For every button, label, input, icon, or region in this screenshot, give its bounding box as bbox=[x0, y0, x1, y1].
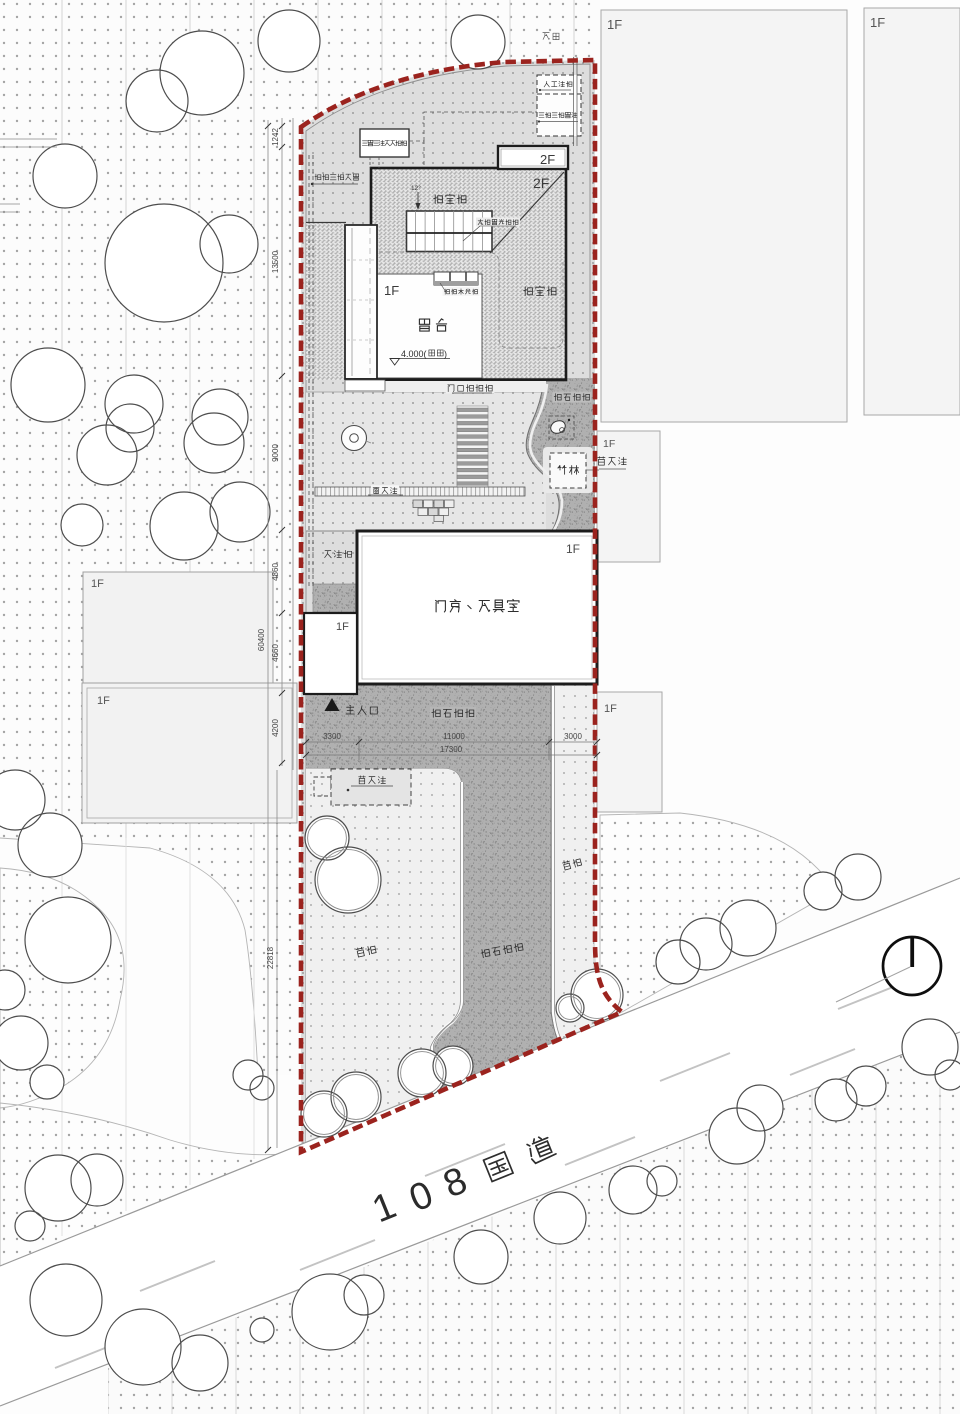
svg-text:12°: 12° bbox=[411, 184, 421, 192]
svg-text:4.000(: 4.000( bbox=[401, 349, 427, 359]
svg-text:4200: 4200 bbox=[271, 719, 280, 737]
svg-text:1F: 1F bbox=[384, 283, 399, 298]
svg-text:1F: 1F bbox=[607, 17, 622, 32]
svg-text:): ) bbox=[444, 349, 447, 359]
svg-text:3000: 3000 bbox=[564, 732, 582, 741]
svg-text:1F: 1F bbox=[566, 542, 580, 556]
svg-text:1F: 1F bbox=[604, 703, 617, 715]
svg-text:1F: 1F bbox=[97, 695, 110, 707]
svg-text:3300: 3300 bbox=[323, 732, 341, 741]
svg-text:1F: 1F bbox=[870, 15, 885, 30]
svg-text:9000: 9000 bbox=[271, 444, 280, 462]
svg-text:13500: 13500 bbox=[271, 250, 280, 273]
svg-text:1F: 1F bbox=[336, 621, 349, 633]
svg-text:17300: 17300 bbox=[440, 745, 463, 754]
svg-text:1242: 1242 bbox=[271, 128, 280, 146]
svg-text:4660: 4660 bbox=[271, 644, 280, 662]
svg-text:60400: 60400 bbox=[257, 628, 266, 651]
svg-text:1F: 1F bbox=[603, 438, 615, 450]
svg-text:2F: 2F bbox=[540, 152, 555, 167]
svg-text:2F: 2F bbox=[533, 175, 549, 191]
svg-text:4860: 4860 bbox=[271, 563, 280, 581]
svg-text:11000: 11000 bbox=[443, 732, 465, 741]
svg-text:22818: 22818 bbox=[266, 946, 275, 969]
svg-text:1F: 1F bbox=[91, 578, 104, 590]
